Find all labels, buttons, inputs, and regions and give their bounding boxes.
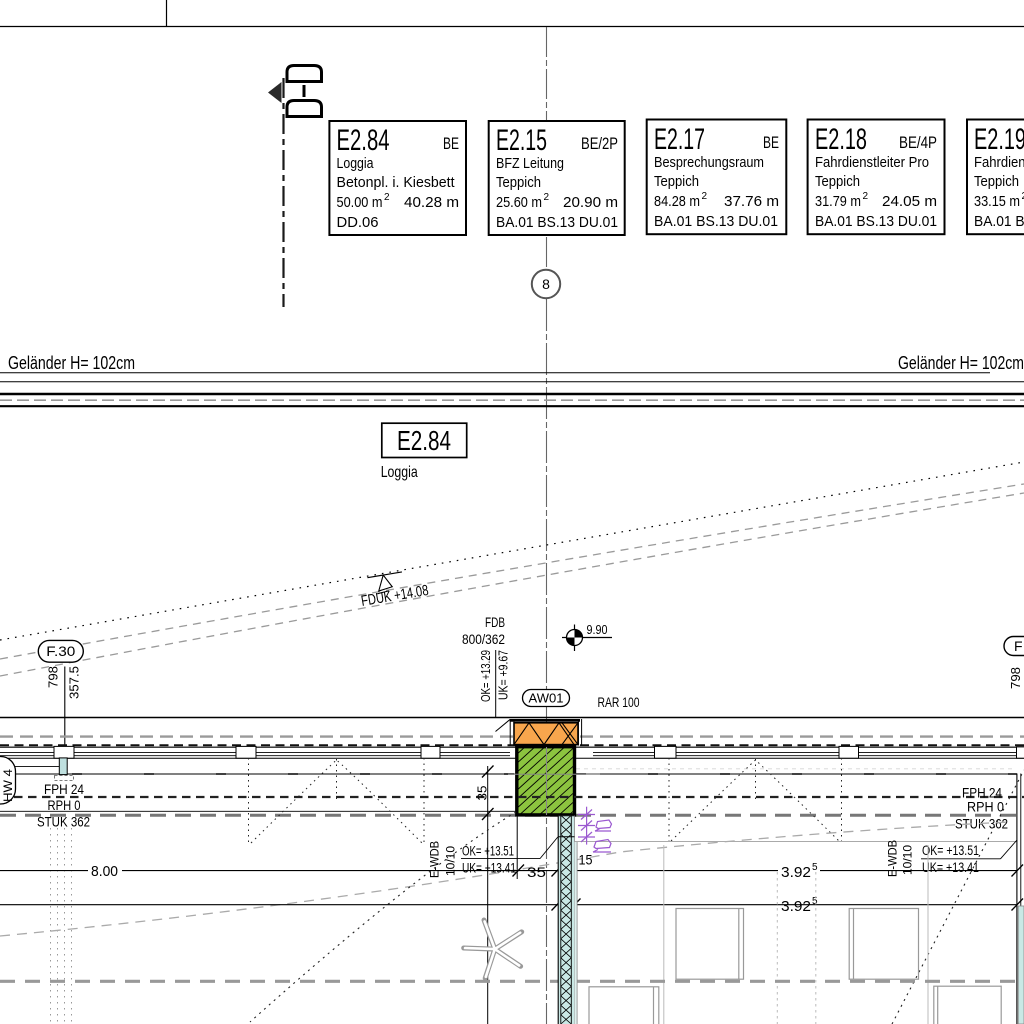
- svg-text:35: 35: [527, 864, 546, 880]
- svg-text:8.00: 8.00: [91, 863, 118, 880]
- svg-text:3.92: 3.92: [781, 864, 811, 881]
- svg-text:RPH 0: RPH 0: [967, 799, 1004, 815]
- svg-text:10/10: 10/10: [901, 845, 915, 875]
- svg-text:357.5: 357.5: [67, 666, 82, 699]
- svg-text:E-WDB: E-WDB: [428, 841, 442, 878]
- svg-text:DD.06: DD.06: [337, 214, 379, 231]
- svg-text:BE/2P: BE/2P: [581, 134, 618, 153]
- svg-text:RPH 0: RPH 0: [48, 797, 81, 813]
- svg-text:BE/4P: BE/4P: [899, 133, 937, 152]
- svg-text:Fahrdienstleiter Pro: Fahrdienstleiter Pro: [815, 154, 929, 171]
- svg-text:3.92: 3.92: [781, 898, 811, 915]
- svg-text:Loggia: Loggia: [337, 155, 375, 172]
- svg-text:50.00 m: 50.00 m: [337, 194, 383, 211]
- svg-text:Teppich: Teppich: [496, 174, 541, 191]
- svg-text:Besprechungsraum: Besprechungsraum: [654, 154, 764, 171]
- svg-text:40.28 m: 40.28 m: [404, 194, 459, 211]
- svg-text:F.30: F.30: [46, 643, 75, 659]
- svg-text:Betonpl. i. Kiesbett: Betonpl. i. Kiesbett: [337, 174, 456, 191]
- svg-text:BFZ Leitung: BFZ Leitung: [496, 155, 564, 172]
- svg-text:HW 4: HW 4: [1, 769, 15, 802]
- svg-text:E2.18: E2.18: [815, 123, 867, 156]
- svg-text:E2.84: E2.84: [337, 124, 390, 157]
- svg-text:10/10: 10/10: [444, 846, 458, 876]
- svg-text:8: 8: [542, 276, 550, 292]
- svg-text:E2.15: E2.15: [496, 124, 547, 157]
- svg-text:20.90 m: 20.90 m: [563, 194, 618, 211]
- svg-text:33.15 m: 33.15 m: [974, 193, 1020, 210]
- svg-text:Geländer H= 102cm: Geländer H= 102cm: [898, 353, 1024, 373]
- svg-text:798: 798: [46, 666, 61, 688]
- svg-text:15: 15: [579, 852, 593, 868]
- svg-text:STUK 362: STUK 362: [37, 814, 90, 830]
- svg-text:E2.19: E2.19: [974, 123, 1024, 156]
- svg-text:31.79 m: 31.79 m: [815, 193, 861, 210]
- svg-text:2: 2: [384, 192, 390, 203]
- svg-text:2: 2: [863, 191, 869, 202]
- svg-text:OK= +13.29: OK= +13.29: [478, 650, 493, 702]
- svg-text:BA.01 BS.13 DU.01: BA.01 BS.13 DU.01: [974, 213, 1024, 230]
- svg-text:84.28 m: 84.28 m: [654, 193, 700, 210]
- svg-text:2: 2: [702, 191, 708, 202]
- svg-text:OK= +13.51: OK= +13.51: [462, 844, 514, 859]
- svg-text:Teppich: Teppich: [654, 173, 699, 190]
- svg-text:37.76 m: 37.76 m: [724, 193, 779, 210]
- svg-text:25.60 m: 25.60 m: [496, 194, 542, 211]
- svg-text:RAR 100: RAR 100: [598, 695, 640, 710]
- svg-text:OK= +13.51: OK= +13.51: [922, 843, 979, 858]
- svg-text:FDB: FDB: [485, 615, 505, 630]
- svg-text:UK= +13.41: UK= +13.41: [462, 861, 516, 876]
- svg-text:2: 2: [544, 192, 550, 203]
- svg-text:24.05 m: 24.05 m: [882, 193, 937, 210]
- svg-text:E2.17: E2.17: [654, 123, 705, 156]
- svg-text:BA.01 BS.13 DU.01: BA.01 BS.13 DU.01: [496, 214, 618, 231]
- svg-text:BE: BE: [443, 134, 459, 153]
- svg-text:5: 5: [812, 862, 818, 873]
- svg-text:798: 798: [1008, 667, 1023, 689]
- svg-text:BA.01 BS.13 DU.01: BA.01 BS.13 DU.01: [654, 213, 778, 230]
- svg-text:35: 35: [475, 786, 490, 801]
- svg-text:FPH 24: FPH 24: [44, 781, 84, 797]
- svg-text:9.90: 9.90: [587, 622, 608, 637]
- svg-text:5: 5: [812, 896, 818, 907]
- svg-text:Loggia: Loggia: [381, 464, 418, 481]
- svg-text:BE: BE: [763, 133, 779, 152]
- svg-text:Teppich: Teppich: [974, 173, 1019, 190]
- svg-text:UK= +9.67: UK= +9.67: [496, 650, 511, 700]
- svg-text:Teppich: Teppich: [815, 173, 860, 190]
- svg-text:800/362: 800/362: [462, 632, 505, 647]
- svg-text:F: F: [1014, 638, 1023, 654]
- svg-text:AW01: AW01: [529, 691, 564, 706]
- svg-text:E-WDB: E-WDB: [886, 840, 900, 877]
- svg-text:Geländer H= 102cm: Geländer H= 102cm: [8, 353, 135, 373]
- svg-text:Fahrdienstleiter Pro: Fahrdienstleiter Pro: [974, 154, 1024, 171]
- svg-text:BA.01 BS.13 DU.01: BA.01 BS.13 DU.01: [815, 213, 937, 230]
- svg-text:E2.84: E2.84: [397, 425, 451, 456]
